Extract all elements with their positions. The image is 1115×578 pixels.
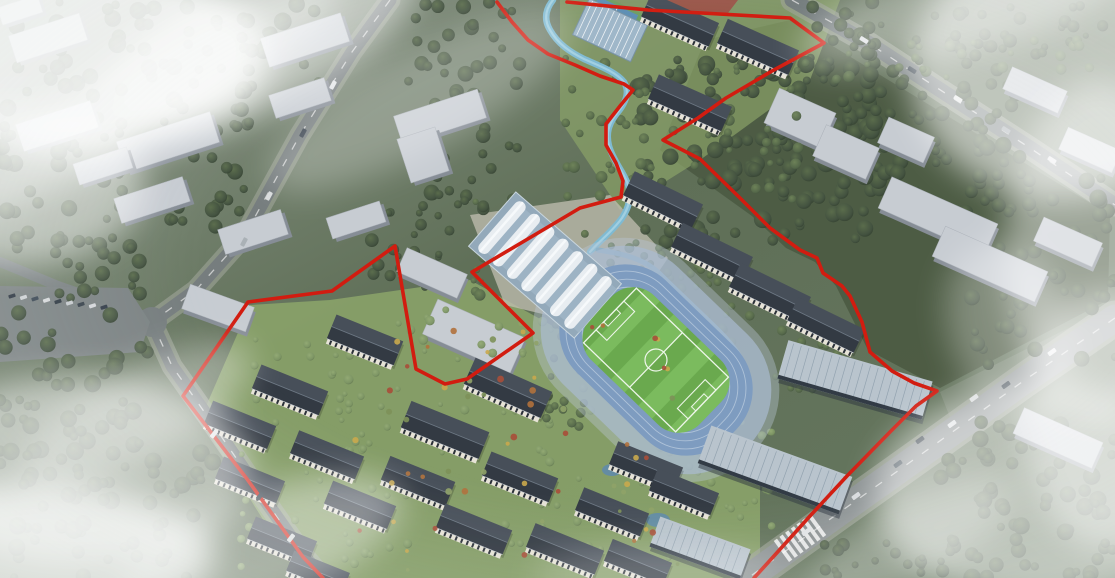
aerial-site-plan-svg: [0, 0, 1115, 578]
haze-veil: [0, 0, 1115, 578]
aerial-rendering: [0, 0, 1115, 578]
